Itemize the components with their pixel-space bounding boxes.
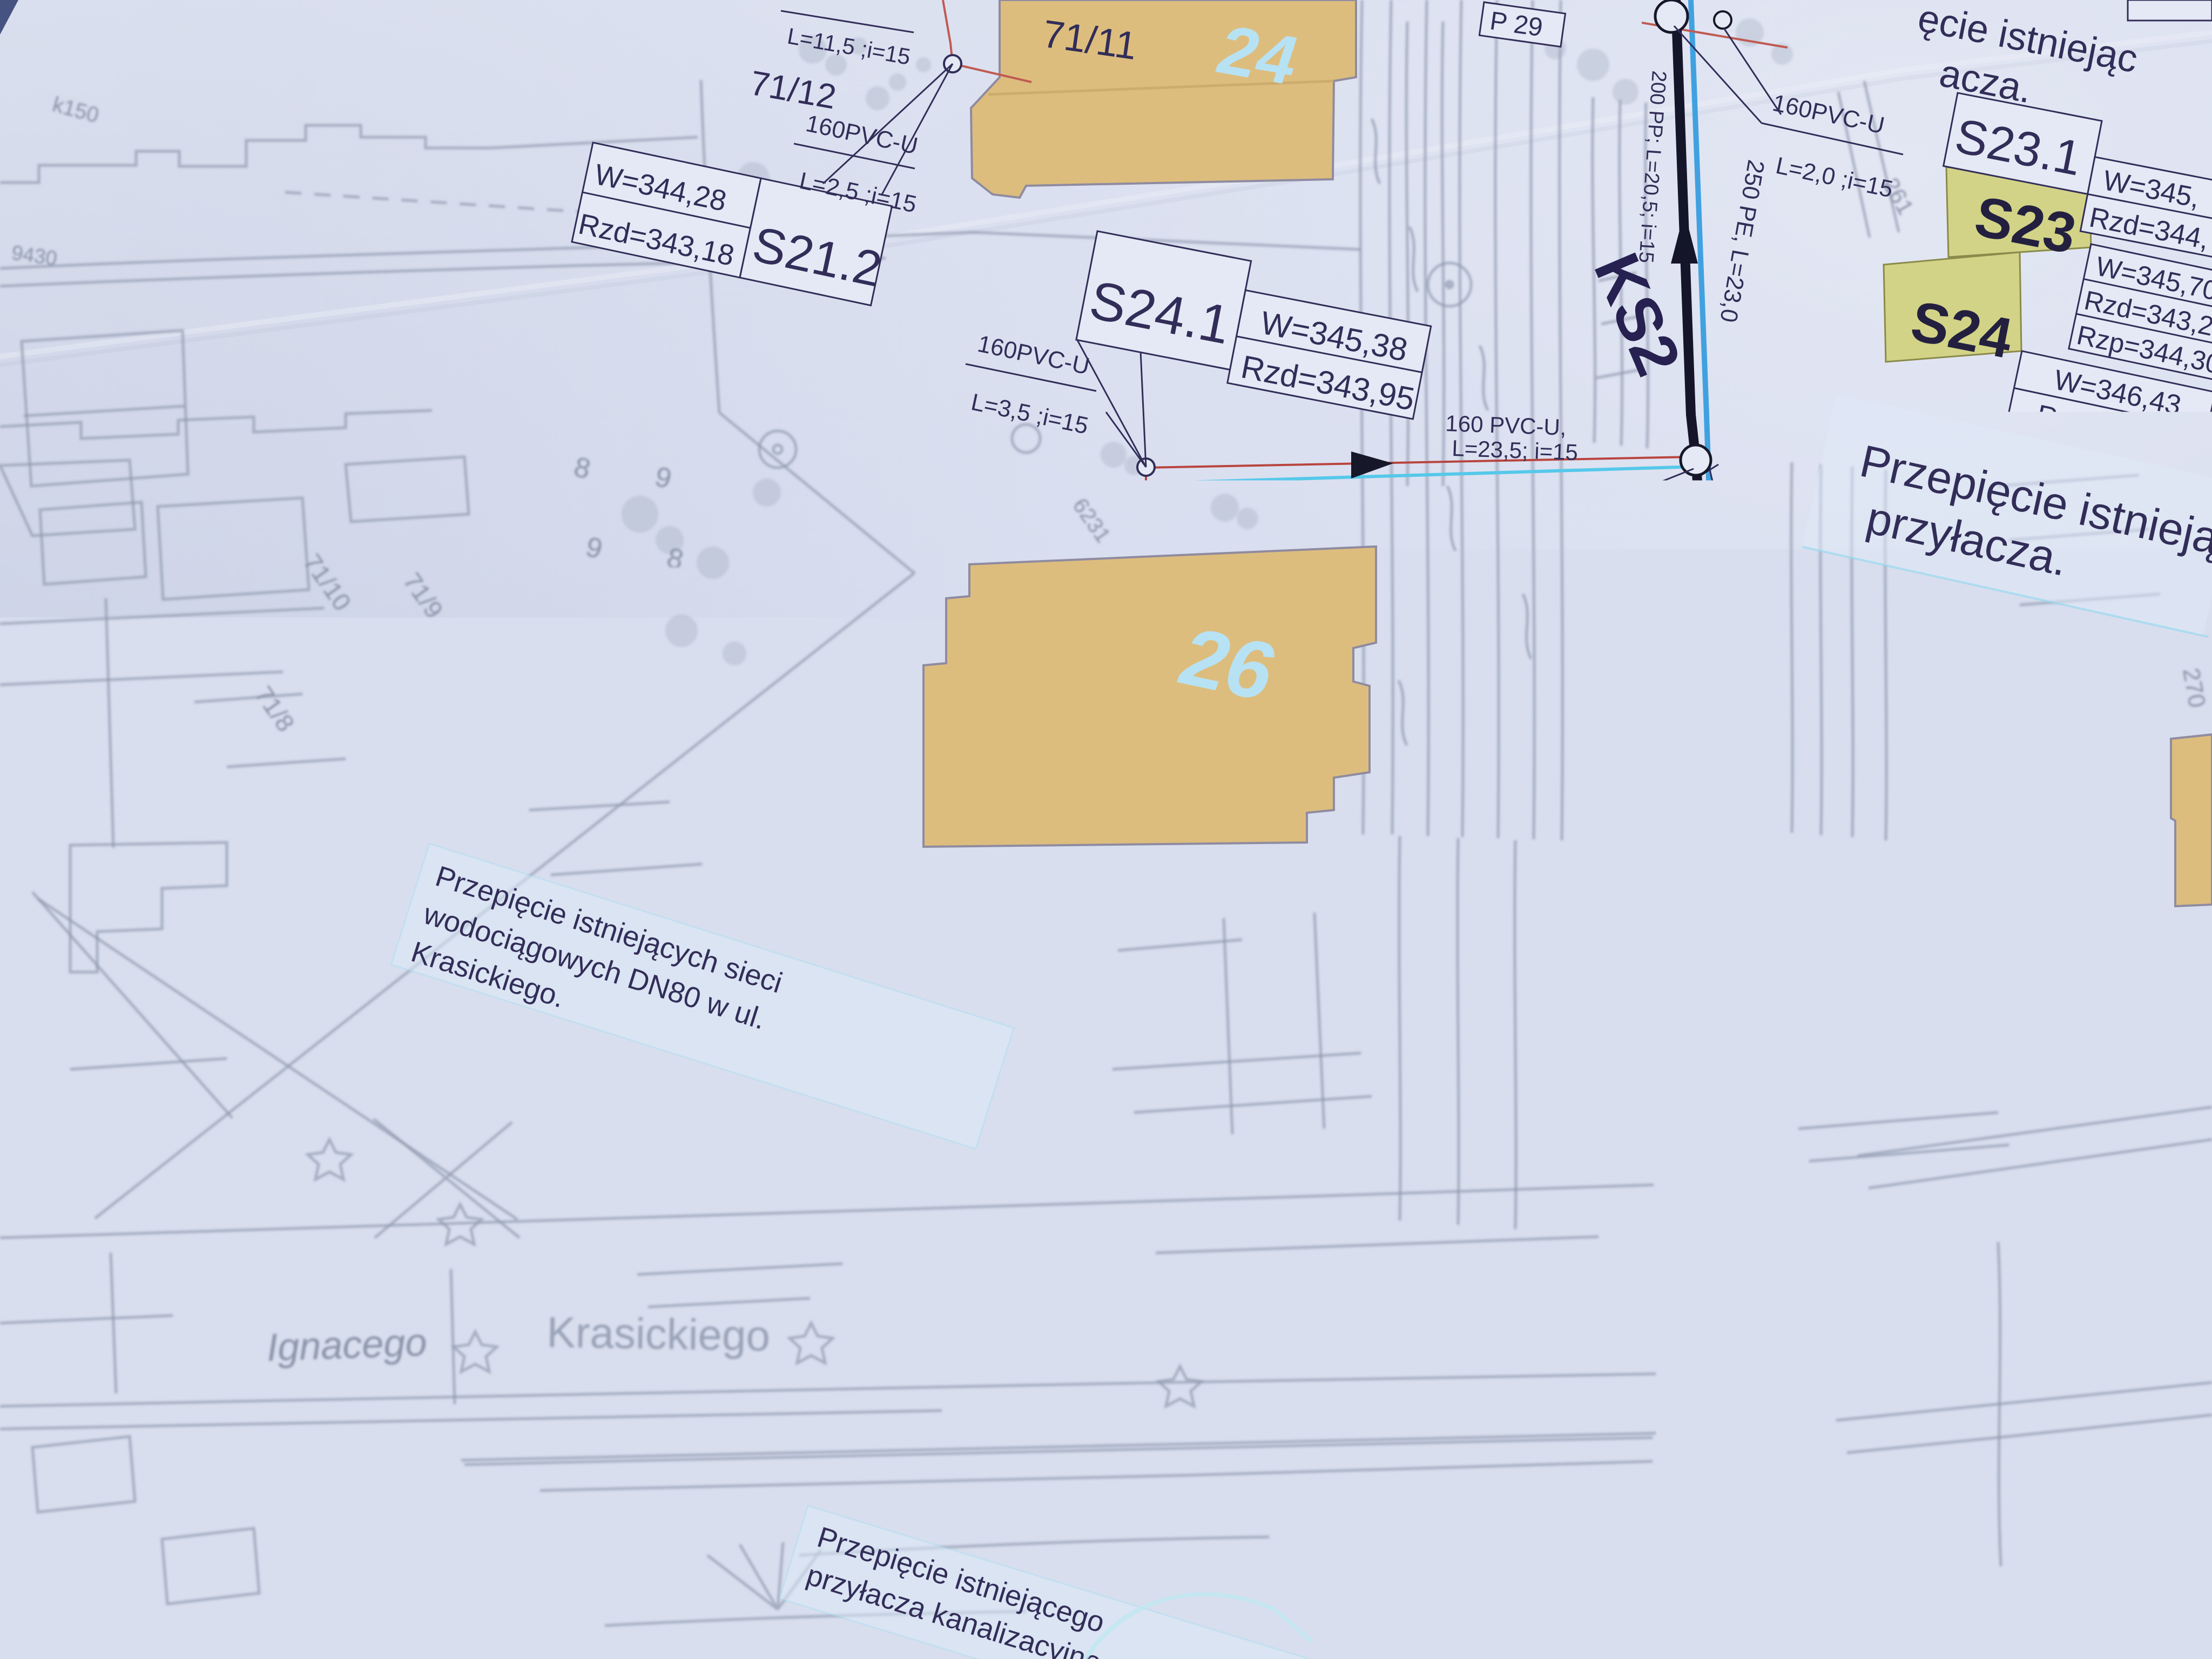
svg-text:Krasickiego: Krasickiego (692, 1222, 1285, 1392)
svg-text:5: 5 (1849, 1283, 1871, 1326)
svg-text:L=23,5; i=15: L=23,5; i=15 (1452, 435, 1579, 465)
svg-text:Ignacego: Ignacego (266, 1321, 428, 1370)
svg-text:SW2A: SW2A (1464, 1235, 1702, 1351)
svg-text:ul.: ul. (449, 1230, 564, 1410)
